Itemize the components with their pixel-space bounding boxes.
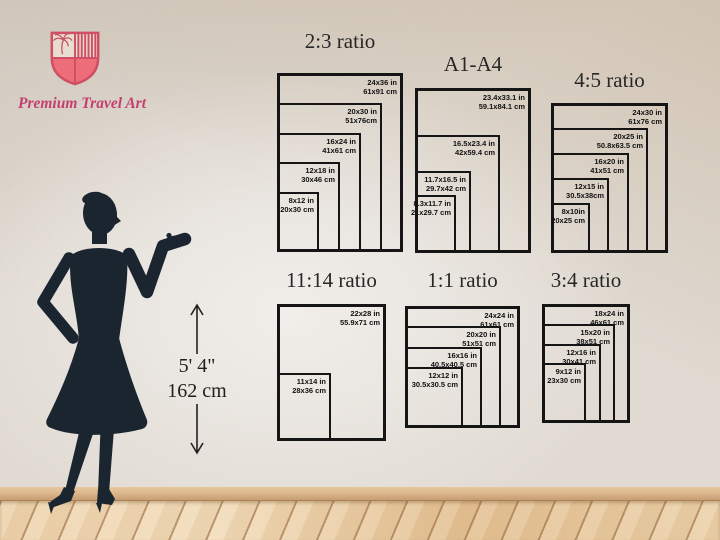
size-label: 16.5x23.4 in42x59.4 cm	[453, 139, 495, 157]
frame-stack: 22x28 in55.9x71 cm11x14 in28x36 cm	[277, 304, 386, 441]
size-label: 16x24 in41x61 cm	[322, 137, 356, 155]
size-label: 12x15 in30.5x38cm	[566, 182, 604, 200]
ratio-group-title: 2:3 ratio	[305, 31, 376, 52]
ratio-group-title: 3:4 ratio	[551, 270, 622, 291]
brand-name: Premium Travel Art	[18, 95, 132, 113]
size-rect: 8x10in20x25 cm	[551, 203, 590, 253]
shield-icon	[46, 29, 104, 87]
frame-stack: 24x30 in61x76 cm20x25 in50.8x63.5 cm16x2…	[551, 103, 668, 253]
ratio-group-title: 4:5 ratio	[574, 70, 645, 91]
arrow-down-icon	[182, 404, 212, 456]
size-label: 8.3x11.7 in21x29.7 cm	[411, 199, 451, 217]
size-label: 12x12 in30.5x30.5 cm	[412, 371, 458, 389]
ratio-group-title: A1-A4	[444, 54, 502, 75]
size-rect: 9x12 in23x30 cm	[542, 363, 586, 423]
size-label: 16x20 in41x51 cm	[590, 157, 624, 175]
height-cm: 162 cm	[167, 379, 226, 404]
ratio-group-title: 11:14 ratio	[286, 270, 377, 291]
size-label: 20x25 in50.8x63.5 cm	[597, 132, 643, 150]
frame-stack: 18x24 in46x61 cm15x20 in38x51 cm12x16 in…	[542, 304, 630, 423]
frame-stack: 24x36 in61x91 cm20x30 in51x76cm16x24 in4…	[277, 73, 403, 252]
brand-logo: Premium Travel Art	[18, 29, 132, 113]
size-label: 24x36 in61x91 cm	[363, 78, 397, 96]
size-rect: 12x12 in30.5x30.5 cm	[405, 367, 463, 428]
size-label: 8x10in20x25 cm	[551, 207, 585, 225]
size-label: 24x30 in61x76 cm	[628, 108, 662, 126]
size-label: 9x12 in23x30 cm	[547, 367, 581, 385]
size-rect: 8x12 in20x30 cm	[277, 192, 319, 252]
size-rect: 8.3x11.7 in21x29.7 cm	[415, 195, 456, 253]
size-label: 12x18 in30x46 cm	[301, 166, 335, 184]
size-label: 8x12 in20x30 cm	[280, 196, 314, 214]
size-label: 23.4x33.1 in59.1x84.1 cm	[479, 93, 525, 111]
wall-scene: Premium Travel Art	[0, 0, 720, 540]
frame-stack: 24x24 in61x61 cm20x20 in51x51 cm16x16 in…	[405, 306, 520, 428]
arrow-up-icon	[182, 302, 212, 354]
size-label: 20x30 in51x76cm	[345, 107, 377, 125]
size-label: 11x14 in28x36 cm	[292, 377, 326, 395]
ratio-group-title: 1:1 ratio	[427, 270, 498, 291]
height-feet: 5' 4"	[179, 354, 216, 379]
size-label: 11.7x16.5 in29.7x42 cm	[424, 175, 466, 193]
height-marker: 5' 4" 162 cm	[161, 302, 233, 468]
size-label: 22x28 in55.9x71 cm	[340, 309, 380, 327]
frame-stack: 23.4x33.1 in59.1x84.1 cm16.5x23.4 in42x5…	[415, 88, 531, 253]
size-rect: 11x14 in28x36 cm	[277, 373, 331, 441]
size-label: 20x20 in51x51 cm	[462, 330, 496, 348]
